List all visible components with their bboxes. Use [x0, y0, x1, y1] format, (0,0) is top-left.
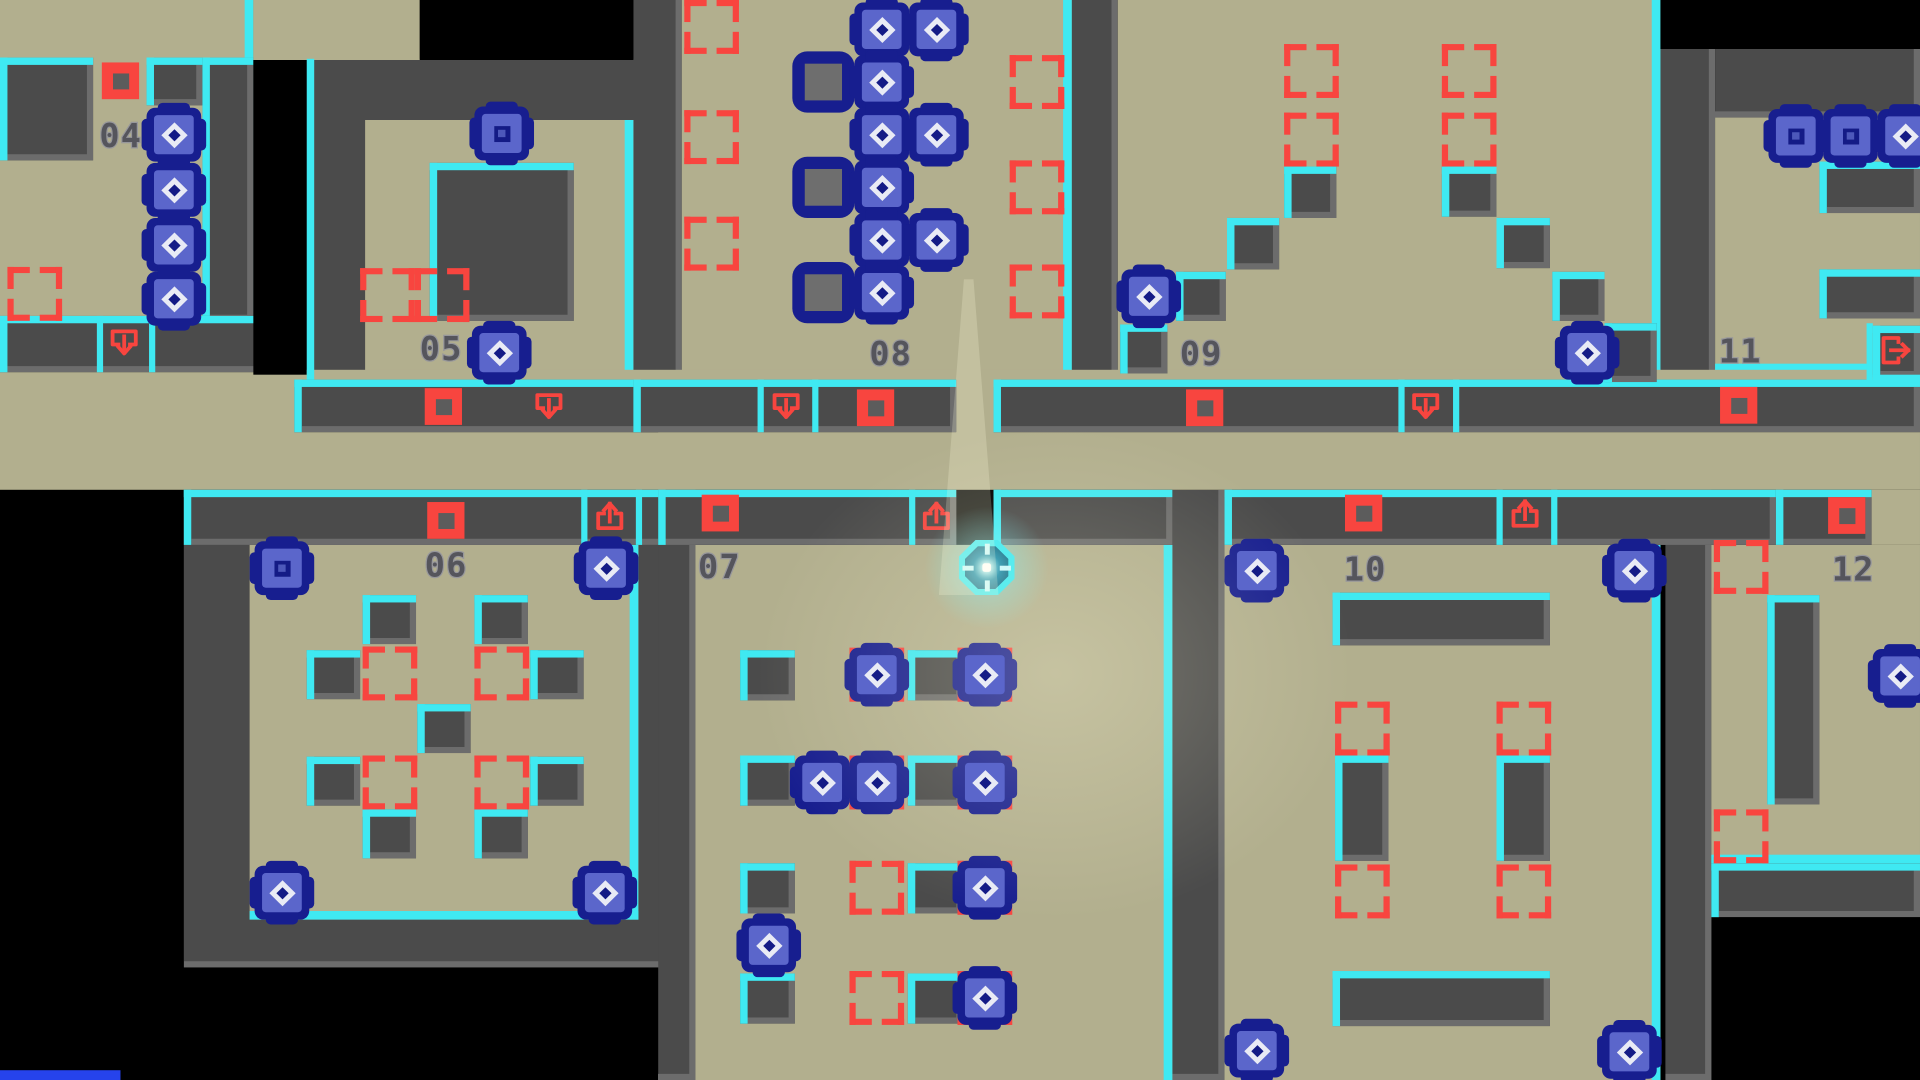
wall-block	[1711, 863, 1920, 917]
wall-block	[474, 809, 527, 858]
wall-block	[1227, 218, 1279, 269]
floor	[1872, 490, 1920, 545]
switch-marker	[857, 389, 894, 426]
crate-diamond[interactable]	[472, 326, 527, 380]
wall-block	[1819, 269, 1920, 318]
wall-block	[1176, 272, 1226, 321]
room-label: 06	[425, 550, 468, 583]
wall-edge-highlight	[97, 316, 103, 372]
progress-bar	[0, 1070, 120, 1080]
crate-diamond[interactable]	[147, 272, 202, 326]
void-gap	[420, 0, 634, 60]
crate-square[interactable]	[474, 107, 529, 161]
wall-edge-highlight	[1873, 375, 1920, 382]
wall-block	[363, 595, 416, 644]
wall-block	[1333, 971, 1550, 1026]
crate-diamond[interactable]	[854, 160, 909, 214]
square-glyph-icon	[1842, 128, 1858, 144]
game-map: 040506070809101112	[0, 0, 1920, 1080]
wall-edge-highlight	[581, 490, 587, 545]
exit-portal-icon[interactable]	[1875, 331, 1915, 370]
crate-diamond[interactable]	[1229, 1024, 1284, 1078]
wall-block	[430, 163, 574, 321]
crate-diamond[interactable]	[909, 2, 964, 56]
wall-block	[530, 757, 583, 806]
down-portal-icon[interactable]	[766, 387, 806, 426]
crate-diamond[interactable]	[255, 866, 310, 920]
room-label: 12	[1832, 553, 1875, 586]
light-glow	[745, 416, 1366, 930]
crate-diamond[interactable]	[909, 213, 964, 267]
wall-block	[1497, 756, 1550, 861]
crate-diamond[interactable]	[577, 866, 632, 920]
wall-block	[0, 58, 93, 161]
room-label: 09	[1180, 338, 1223, 371]
switch-marker	[1828, 497, 1865, 534]
room-label: 08	[869, 338, 912, 371]
wall-block	[530, 650, 583, 699]
wall-block	[1284, 167, 1336, 218]
crate-diamond[interactable]	[147, 163, 202, 217]
switch-marker	[1186, 389, 1223, 426]
socket-block	[792, 51, 854, 112]
crate-diamond[interactable]	[579, 541, 634, 595]
crate-diamond[interactable]	[1560, 326, 1615, 380]
wall-edge-highlight	[1867, 323, 1873, 382]
wall-mass	[1660, 49, 1715, 382]
wall-edge-highlight	[812, 380, 818, 433]
crate-square[interactable]	[255, 541, 310, 595]
crate-diamond[interactable]	[147, 218, 202, 272]
wall-block	[740, 973, 795, 1023]
wall-mass	[658, 545, 695, 1080]
game-viewport: 040506070809101112	[0, 0, 1920, 1080]
wall-block	[417, 704, 470, 753]
wall-block	[147, 58, 203, 106]
crate-diamond[interactable]	[854, 213, 909, 267]
wall-edge-highlight	[307, 59, 314, 380]
crate-square[interactable]	[1823, 109, 1878, 163]
void-gap	[1660, 0, 1920, 49]
crate-diamond[interactable]	[854, 2, 909, 56]
wall-block	[1442, 167, 1497, 217]
wall-edge-highlight	[1398, 380, 1404, 433]
wall-block	[474, 595, 527, 644]
wall-block	[740, 863, 795, 913]
wall-edge-highlight	[1453, 380, 1459, 433]
room-label: 10	[1344, 553, 1387, 586]
room-label: 11	[1719, 336, 1762, 369]
room-label: 05	[420, 333, 463, 366]
socket-block	[792, 157, 854, 218]
wall-edge-highlight	[1497, 490, 1503, 545]
down-portal-icon[interactable]	[1406, 387, 1446, 426]
switch-marker	[1720, 387, 1757, 424]
void-gap	[253, 60, 306, 375]
crate-diamond[interactable]	[741, 918, 796, 972]
wall-block	[1497, 218, 1550, 268]
floor	[253, 0, 419, 60]
switch-marker	[102, 62, 139, 99]
wall-edge-highlight	[636, 490, 642, 545]
wall-mass	[633, 0, 681, 380]
crate-diamond[interactable]	[909, 108, 964, 162]
wall-block	[0, 316, 294, 372]
switch-marker	[427, 502, 464, 539]
wall-block	[1767, 595, 1819, 804]
square-glyph-icon	[494, 126, 510, 142]
crate-diamond[interactable]	[1607, 544, 1662, 598]
wall-mass	[1072, 0, 1118, 380]
room-label: 07	[698, 551, 741, 584]
crate-diamond[interactable]	[1878, 109, 1920, 163]
wall-block	[1819, 162, 1920, 213]
socket-block	[792, 262, 854, 323]
square-glyph-icon	[274, 560, 290, 576]
down-portal-icon[interactable]	[104, 323, 144, 362]
crate-diamond[interactable]	[958, 971, 1013, 1025]
switch-marker	[702, 495, 739, 532]
switch-marker	[1345, 495, 1382, 532]
crate-diamond[interactable]	[1602, 1025, 1657, 1079]
wall-block	[294, 380, 658, 433]
wall-block	[1552, 272, 1604, 321]
crate-square[interactable]	[1768, 109, 1823, 163]
down-portal-icon[interactable]	[529, 387, 569, 426]
wall-edge-highlight	[758, 380, 764, 433]
switch-marker	[425, 388, 462, 425]
up-portal-icon[interactable]	[590, 497, 630, 536]
room-label: 04	[99, 120, 142, 153]
wall-block	[1333, 593, 1550, 646]
wall-block	[1120, 324, 1167, 373]
up-portal-icon[interactable]	[1505, 495, 1545, 534]
wall-block	[363, 809, 416, 858]
wall-block	[1335, 756, 1388, 861]
crate-diamond[interactable]	[854, 266, 909, 320]
wall-block	[307, 650, 360, 699]
wall-block	[307, 757, 360, 806]
crate-diamond[interactable]	[854, 108, 909, 162]
wall-block	[202, 58, 253, 321]
square-glyph-icon	[1788, 128, 1804, 144]
crate-diamond[interactable]	[1121, 269, 1176, 323]
crate-diamond[interactable]	[1873, 649, 1920, 703]
wall-edge-highlight	[1551, 490, 1557, 545]
crate-diamond[interactable]	[147, 108, 202, 162]
wall-mass	[1665, 490, 1711, 1080]
crate-diamond[interactable]	[854, 55, 909, 109]
